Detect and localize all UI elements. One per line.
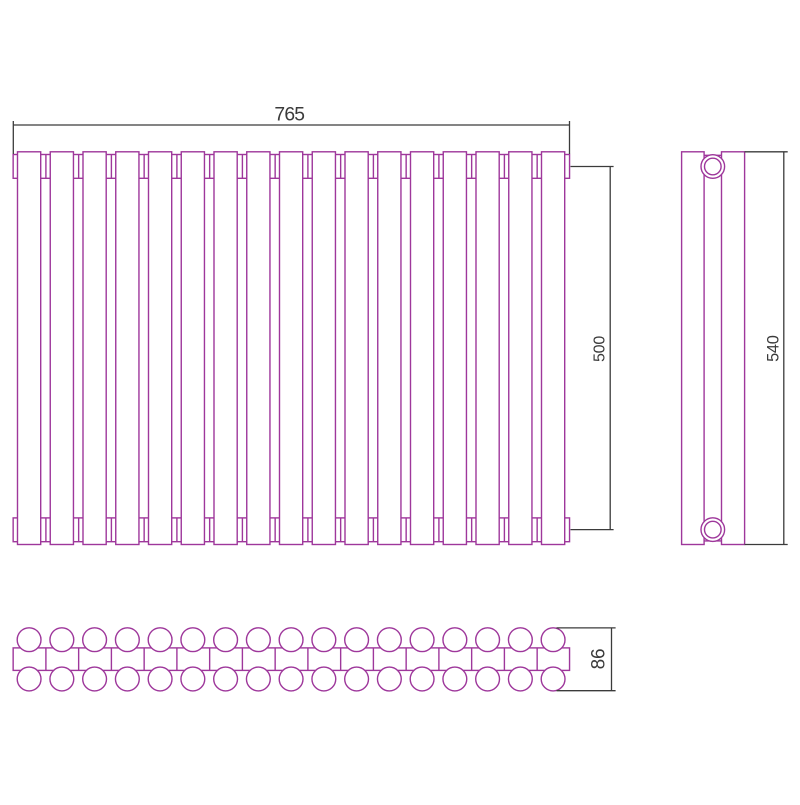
svg-text:86: 86 [589, 649, 610, 670]
svg-text:540: 540 [764, 335, 782, 362]
svg-text:765: 765 [274, 105, 304, 126]
svg-text:500: 500 [591, 336, 608, 362]
